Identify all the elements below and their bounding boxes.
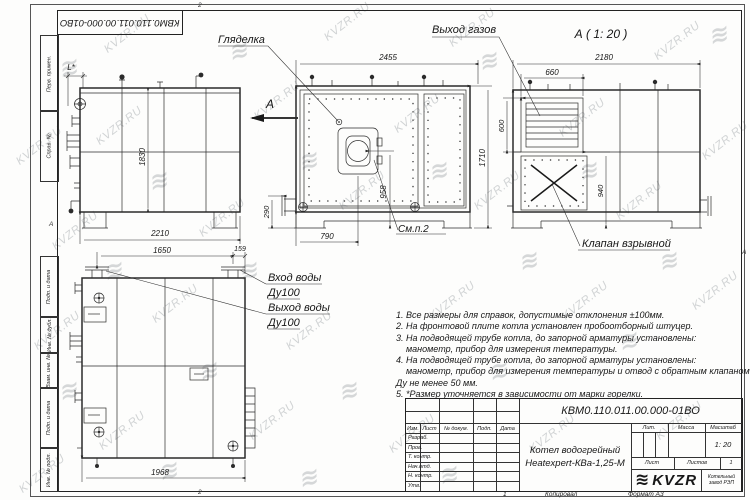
tb-row-nkontr: Н. контр. bbox=[408, 473, 433, 479]
tb-product-line1: Котел водогрейный bbox=[530, 444, 620, 457]
drawing-sheet: KVZR.RU KVZR.RU KVZR.RU KVZR.RU KVZR.RU … bbox=[0, 0, 750, 500]
tb-organization: Котельный завод РЭП bbox=[701, 469, 742, 491]
tb-scale-label: Масштаб bbox=[710, 425, 736, 431]
tb-row-razrab: Разраб. bbox=[408, 435, 428, 441]
note-line: Ду не менее 50 мм. bbox=[396, 378, 730, 389]
dim-plan-pipe-offset: 159 bbox=[234, 246, 246, 253]
technical-notes: 1. Все размеры для справок, допустимые о… bbox=[396, 310, 730, 400]
label-water-outlet-dn: Ду100 bbox=[266, 317, 301, 329]
note-line: 4. На подводящей трубе котла, до запорно… bbox=[396, 355, 730, 366]
view-section-a: А ( 1: 20 ) 2180 660 bbox=[432, 24, 711, 250]
tb-logo-text: KVZR bbox=[652, 472, 697, 489]
dim-plan-pipes-span: 1650 bbox=[153, 246, 171, 255]
dim-side-height: 1830 bbox=[138, 148, 147, 166]
tb-doc-number: КВМ0.110.011.00.000-01ВО bbox=[519, 399, 742, 423]
dim-side-width: 2210 bbox=[150, 229, 169, 238]
section-arrow-letter: А bbox=[265, 97, 274, 111]
callout-peephole: Гляделка bbox=[218, 34, 265, 46]
dim-front-height: 1710 bbox=[478, 149, 487, 167]
tb-sheets-value: 1 bbox=[729, 460, 732, 466]
tb-row-tkontr: Т. контр. bbox=[408, 454, 432, 460]
tb-product-line2: Heatexpert-КВа-1,25-М bbox=[525, 457, 625, 470]
dim-front-pipe: 290 bbox=[262, 205, 271, 219]
dim-front-burner-h: 790 bbox=[320, 232, 334, 241]
tb-sheets-label: Листов bbox=[687, 460, 707, 466]
dim-section-louver-w: 660 bbox=[545, 68, 559, 77]
note-ref: См.п.2 bbox=[398, 224, 429, 235]
note-line: 3. На подводящей трубе котла, до запорно… bbox=[396, 333, 730, 344]
tb-org-line2: завод РЭП bbox=[709, 480, 734, 486]
tb-scale-value: 1: 20 bbox=[715, 440, 732, 449]
tb-massa-label: Масса bbox=[678, 425, 694, 431]
label-water-outlet: Выход воды bbox=[268, 302, 330, 314]
title-block: Изм. Лист № докум. Подп. Дата Разраб. Пр… bbox=[405, 398, 743, 492]
kvzr-logo-icon: ≋ bbox=[635, 470, 650, 490]
tb-col-list: Лист bbox=[422, 426, 436, 432]
tb-row-utv: Утв. bbox=[408, 483, 421, 489]
dim-section-width: 2180 bbox=[594, 53, 613, 62]
section-title: А ( 1: 20 ) bbox=[574, 27, 628, 41]
tb-row-prov: Пров. bbox=[408, 445, 423, 451]
note-line: манометр, прибор для измерения температу… bbox=[396, 344, 730, 355]
dim-side-L: L* bbox=[67, 63, 75, 72]
tb-sheet-label: Лист bbox=[645, 460, 659, 466]
tb-row-nachotd: Нач.отд. bbox=[408, 464, 431, 470]
footer-format: Формат А3 bbox=[628, 491, 664, 498]
tb-col-podp: Подп. bbox=[477, 426, 492, 432]
label-water-inlet: Вход воды bbox=[268, 272, 321, 284]
tb-col-doc: № докум. bbox=[444, 426, 468, 432]
tb-col-izm: Изм. bbox=[407, 426, 419, 432]
dim-plan-width: 1968 bbox=[151, 468, 169, 477]
dim-front-width: 2455 bbox=[378, 53, 397, 62]
tb-product-name: Котел водогрейный Heatexpert-КВа-1,25-М bbox=[519, 423, 631, 491]
tb-lit-label: Лит. bbox=[643, 425, 656, 431]
note-line: 1. Все размеры для справок, допустимые о… bbox=[396, 310, 730, 321]
note-line: манометр, прибор для измерения температу… bbox=[396, 366, 730, 377]
dim-section-valve-v: 940 bbox=[596, 184, 605, 197]
footer-copied: Копировал bbox=[545, 491, 577, 498]
footer-page-num: 1 bbox=[503, 491, 507, 498]
view-front: 2455 1710 958 290 790 Гляделка См.п.2 bbox=[218, 34, 492, 246]
view-plan: 1650 159 1968 Вход воды Ду100 Выход воды… bbox=[70, 246, 330, 482]
label-water-inlet-dn: Ду100 bbox=[266, 287, 301, 299]
dim-section-louver-h: 600 bbox=[497, 119, 506, 132]
callout-gas-outlet: Выход газов bbox=[432, 24, 496, 36]
tb-logo: ≋ KVZR bbox=[631, 469, 701, 491]
tb-col-data: Дата bbox=[500, 426, 515, 432]
note-line: 2. На фронтовой плите котла установлен п… bbox=[396, 321, 730, 332]
callout-explosion-valve: Клапан взрывной bbox=[582, 238, 671, 250]
